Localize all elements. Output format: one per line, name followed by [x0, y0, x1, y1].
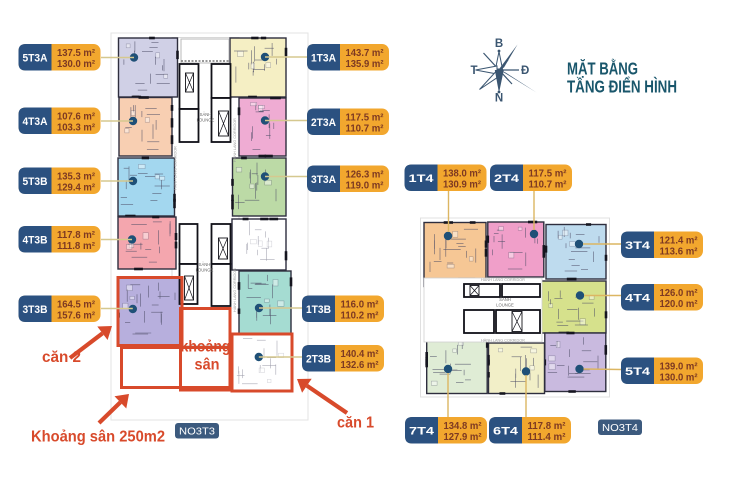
svg-text:127.9 m²: 127.9 m² [444, 431, 482, 443]
svg-text:Đ: Đ [521, 65, 529, 77]
svg-text:1T4: 1T4 [409, 173, 435, 185]
svg-text:SẢNH: SẢNH [499, 297, 511, 302]
svg-text:SẢNH: SẢNH [200, 112, 212, 117]
svg-text:căn 1: căn 1 [337, 415, 374, 432]
svg-text:SẢNH: SẢNH [199, 262, 211, 267]
svg-text:sân: sân [195, 357, 220, 374]
svg-text:120.0 m²: 120.0 m² [660, 298, 698, 310]
svg-text:5T4: 5T4 [625, 366, 651, 378]
svg-text:LOUNGE: LOUNGE [496, 303, 514, 308]
svg-text:4T3B: 4T3B [23, 234, 48, 246]
svg-text:132.6 m²: 132.6 m² [341, 359, 379, 371]
svg-text:MẶT BẰNG: MẶT BẰNG [567, 58, 638, 79]
svg-text:7T4: 7T4 [409, 425, 435, 437]
svg-text:110.2 m²: 110.2 m² [341, 309, 379, 321]
svg-text:113.6 m²: 113.6 m² [660, 245, 698, 257]
svg-text:TẦNG ĐIỂN HÌNH: TẦNG ĐIỂN HÌNH [567, 76, 677, 97]
svg-text:103.3 m²: 103.3 m² [57, 121, 95, 133]
svg-text:N: N [495, 93, 503, 105]
svg-text:130.9 m²: 130.9 m² [443, 178, 481, 190]
svg-text:111.4 m²: 111.4 m² [528, 431, 566, 443]
svg-text:2T3A: 2T3A [311, 117, 336, 129]
svg-text:130.0 m²: 130.0 m² [57, 58, 95, 70]
svg-text:LOUNGE: LOUNGE [197, 118, 215, 123]
svg-text:135.9 m²: 135.9 m² [346, 58, 384, 70]
svg-text:6T4: 6T4 [493, 425, 519, 437]
svg-text:HÀNH LANG CORRIDOR: HÀNH LANG CORRIDOR [174, 146, 178, 190]
svg-text:HÀNH LANG CORRIDOR: HÀNH LANG CORRIDOR [233, 268, 237, 312]
svg-text:khoảng: khoảng [181, 339, 231, 356]
svg-text:B: B [495, 38, 503, 50]
svg-text:HÀNH LANG CORRIDOR: HÀNH LANG CORRIDOR [233, 118, 237, 162]
svg-text:3T3A: 3T3A [311, 174, 336, 186]
svg-text:129.4 m²: 129.4 m² [57, 181, 95, 193]
svg-text:110.7 m²: 110.7 m² [346, 122, 384, 134]
svg-text:NO3T3: NO3T3 [179, 426, 215, 438]
svg-text:157.6 m²: 157.6 m² [57, 309, 95, 321]
svg-text:HÀNH LANG CORRIDOR: HÀNH LANG CORRIDOR [481, 278, 525, 282]
svg-text:5T3B: 5T3B [23, 176, 48, 188]
svg-text:LOUNGE: LOUNGE [196, 268, 214, 273]
svg-text:130.0 m²: 130.0 m² [660, 371, 698, 383]
svg-text:HÀNH LANG CORRIDOR: HÀNH LANG CORRIDOR [481, 339, 525, 343]
svg-text:2T4: 2T4 [494, 173, 520, 185]
svg-text:3T4: 3T4 [625, 240, 651, 252]
svg-text:111.8 m²: 111.8 m² [57, 240, 95, 252]
svg-text:T: T [470, 65, 477, 77]
svg-text:119.0 m²: 119.0 m² [346, 179, 384, 191]
svg-text:5T3A: 5T3A [23, 52, 48, 64]
svg-text:NO3T4: NO3T4 [602, 422, 638, 434]
svg-text:2T3B: 2T3B [306, 353, 331, 365]
svg-text:110.7 m²: 110.7 m² [529, 178, 567, 190]
svg-text:1T3B: 1T3B [306, 304, 331, 316]
svg-text:1T3A: 1T3A [311, 52, 336, 64]
svg-text:3T3B: 3T3B [23, 304, 48, 316]
svg-text:4T4: 4T4 [625, 292, 651, 304]
svg-text:Khoảng sân 250m2: Khoảng sân 250m2 [31, 429, 165, 446]
svg-text:4T3A: 4T3A [23, 116, 48, 128]
